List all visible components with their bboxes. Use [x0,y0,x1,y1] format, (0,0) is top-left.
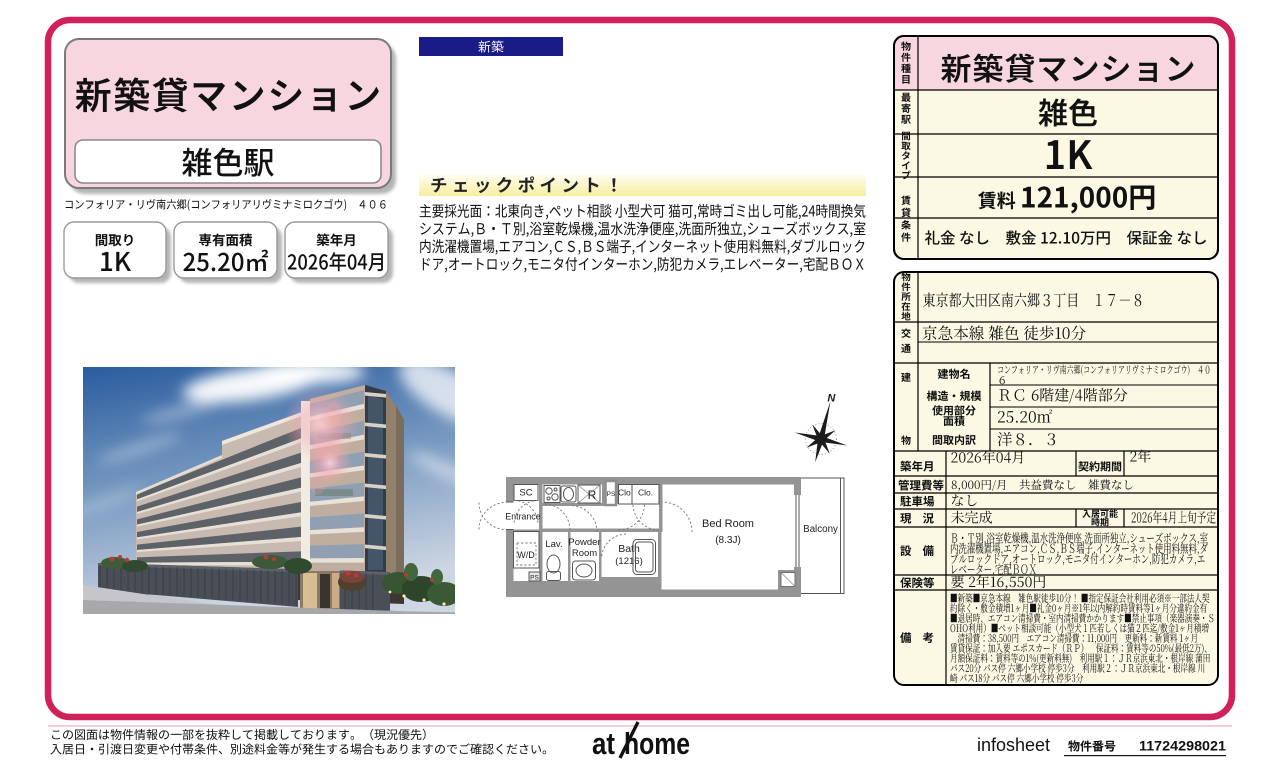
svg-text:Bath: Bath [618,543,640,555]
svg-text:SC: SC [519,488,532,499]
svg-text:Clo.: Clo. [638,488,653,498]
svg-text:(1216): (1216) [615,556,642,567]
svg-text:Entrance: Entrance [505,512,540,522]
svg-text:infosheet: infosheet [977,735,1050,755]
svg-text:11724298021: 11724298021 [1139,739,1227,754]
svg-text:PS: PS [607,491,616,498]
svg-text:R: R [588,488,597,502]
svg-text:Room: Room [572,548,597,559]
svg-text:W/D: W/D [517,550,535,560]
svg-text:PS: PS [530,575,539,582]
svg-text:Powder: Powder [568,537,600,548]
svg-text:Balcony: Balcony [803,524,838,535]
svg-text:Clo.: Clo. [618,488,633,498]
svg-text:at: at [592,726,615,761]
svg-text:Lav.: Lav. [545,539,562,550]
svg-text:N: N [827,392,836,404]
svg-text:(8.3J): (8.3J) [715,535,741,546]
svg-text:Bed Room: Bed Room [702,518,754,530]
